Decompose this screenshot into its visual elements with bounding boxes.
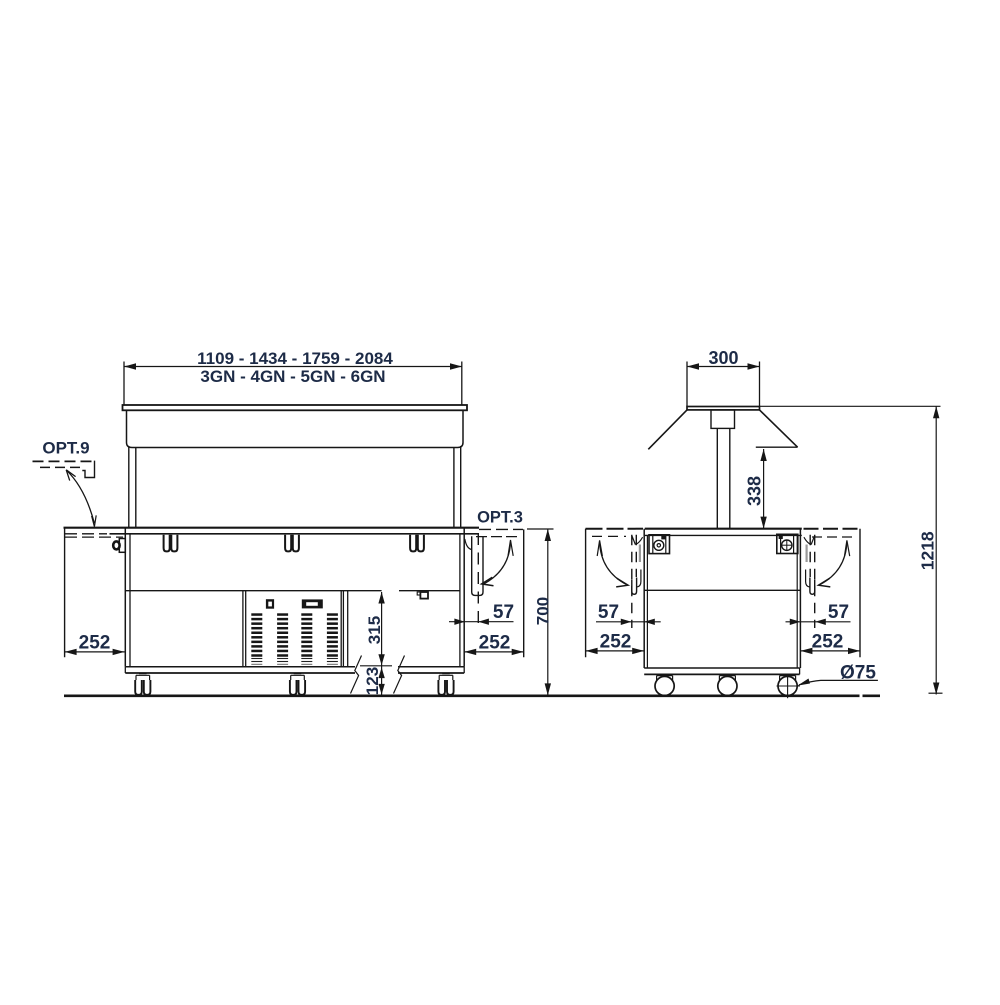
svg-text:123: 123	[363, 667, 382, 695]
svg-text:252: 252	[600, 632, 632, 653]
svg-text:57: 57	[828, 602, 849, 623]
svg-text:252: 252	[79, 633, 111, 654]
svg-text:315: 315	[365, 616, 384, 644]
svg-text:700: 700	[533, 597, 552, 625]
svg-text:OPT.9: OPT.9	[42, 438, 89, 457]
svg-text:OPT.3: OPT.3	[477, 509, 523, 527]
svg-text:1109 - 1434 - 1759 - 2084: 1109 - 1434 - 1759 - 2084	[197, 349, 393, 368]
svg-text:338: 338	[745, 476, 765, 506]
svg-text:252: 252	[479, 633, 511, 654]
svg-text:Ø75: Ø75	[840, 663, 876, 684]
svg-text:57: 57	[598, 602, 619, 623]
svg-text:252: 252	[812, 632, 844, 653]
svg-text:300: 300	[708, 348, 738, 368]
svg-text:57: 57	[493, 602, 514, 623]
svg-text:3GN - 4GN - 5GN - 6GN: 3GN - 4GN - 5GN - 6GN	[200, 367, 385, 386]
svg-text:1218: 1218	[918, 531, 938, 570]
